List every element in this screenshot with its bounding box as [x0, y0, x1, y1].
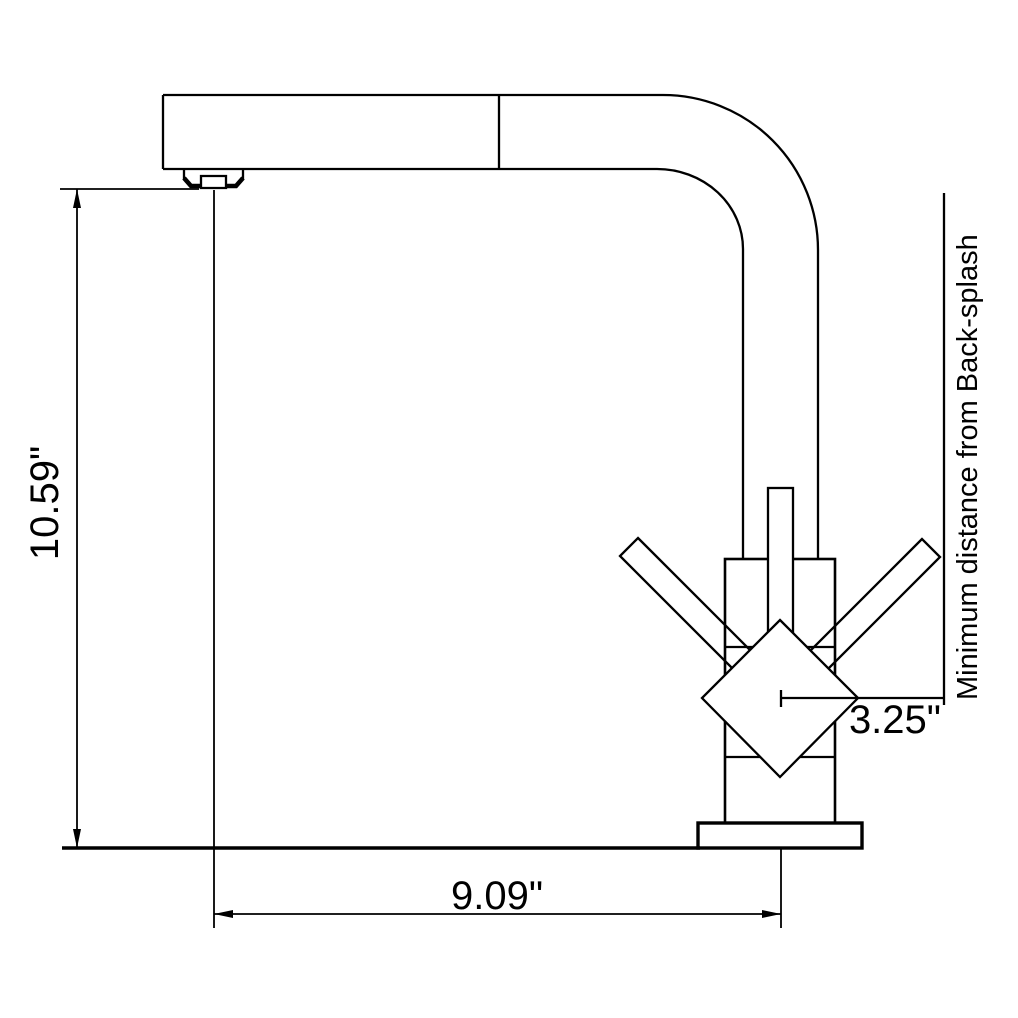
reach-label: 9.09" [451, 874, 543, 918]
reach-dimension-group: 9.09" [214, 190, 781, 928]
backsplash-label: Minimum distance from Back-splash [952, 234, 984, 700]
faucet-base [698, 823, 862, 848]
faucet-outline-group [163, 95, 818, 559]
drawing-canvas: 10.59" 9.09" 3.25" Minimum distance from… [0, 0, 1018, 1018]
reach-arrow-right [762, 910, 781, 918]
spout-outer-outline [163, 95, 818, 559]
height-arrow-up [73, 189, 81, 208]
height-label: 10.59" [23, 446, 67, 560]
offset-label: 3.25" [849, 698, 941, 742]
height-dimension-group: 10.59" [23, 189, 199, 848]
height-arrow-down [73, 829, 81, 848]
aerator-group [184, 169, 243, 188]
spout-inner-outline [163, 169, 743, 559]
faucet-dimension-drawing: 10.59" 9.09" 3.25" Minimum distance from… [0, 0, 1018, 1018]
reach-arrow-left [214, 910, 233, 918]
aerator-tip [201, 176, 226, 188]
